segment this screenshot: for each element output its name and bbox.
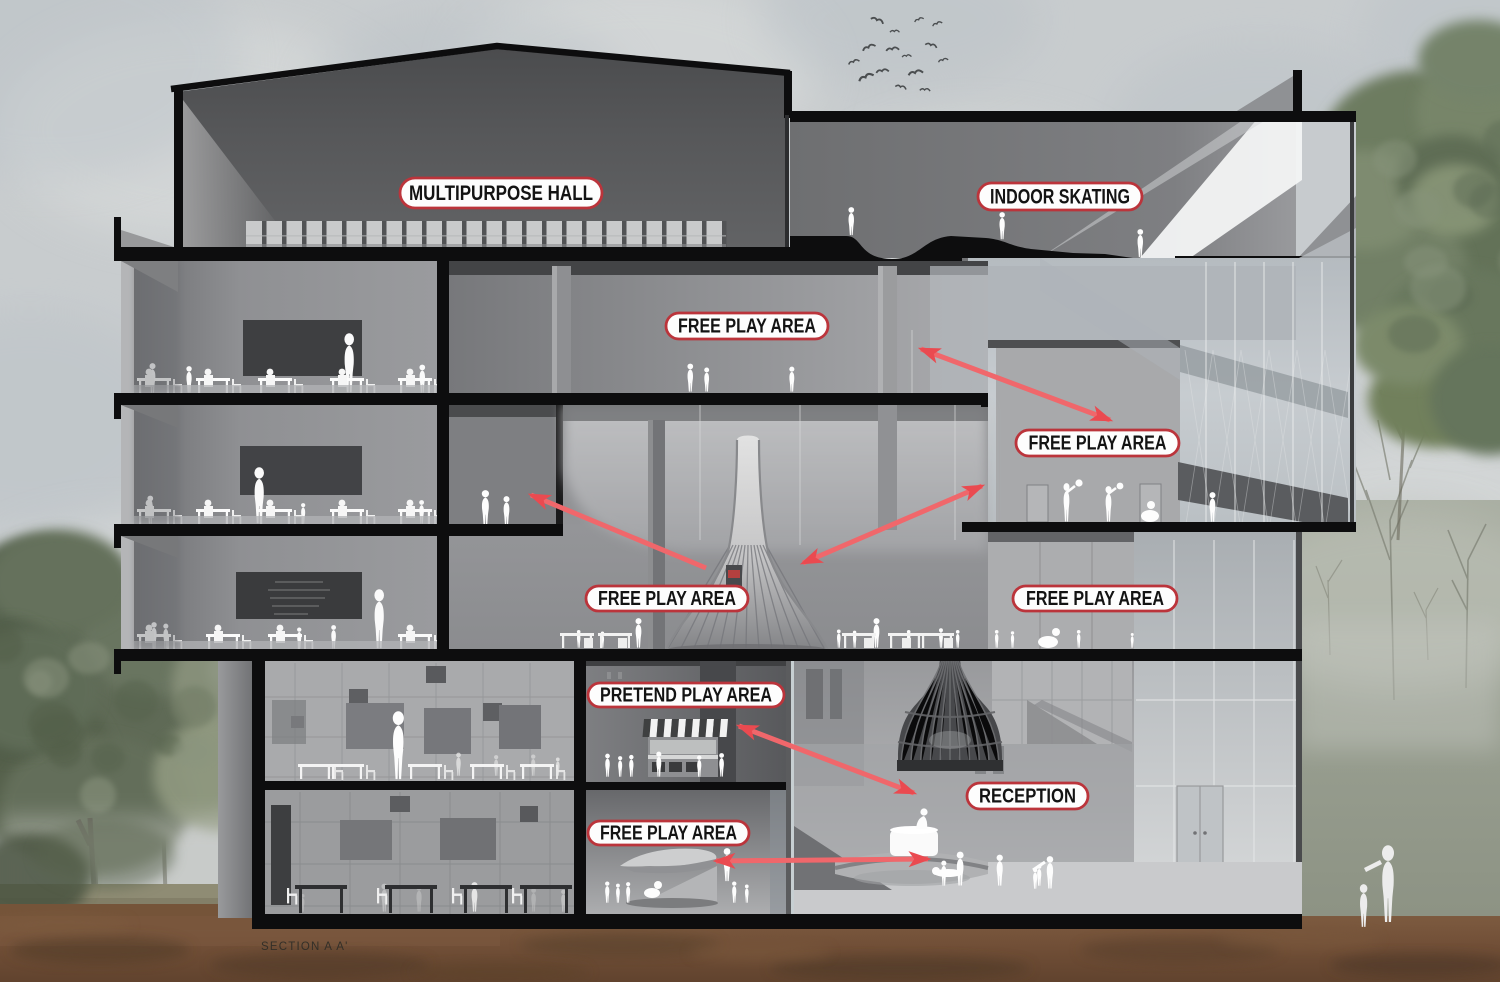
svg-text:INDOOR SKATING: INDOOR SKATING [990, 186, 1130, 209]
svg-text:MULTIPURPOSE HALL: MULTIPURPOSE HALL [409, 182, 593, 205]
svg-text:FREE PLAY AREA: FREE PLAY AREA [1029, 433, 1167, 455]
svg-text:RECEPTION: RECEPTION [979, 786, 1076, 808]
svg-text:FREE PLAY AREA: FREE PLAY AREA [1026, 588, 1164, 610]
svg-text:PRETEND PLAY AREA: PRETEND PLAY AREA [600, 685, 772, 707]
svg-text:FREE PLAY AREA: FREE PLAY AREA [598, 588, 736, 610]
svg-text:SECTION A A': SECTION A A' [261, 941, 349, 953]
svg-text:FREE PLAY AREA: FREE PLAY AREA [678, 316, 816, 338]
svg-text:FREE PLAY AREA: FREE PLAY AREA [600, 823, 737, 845]
